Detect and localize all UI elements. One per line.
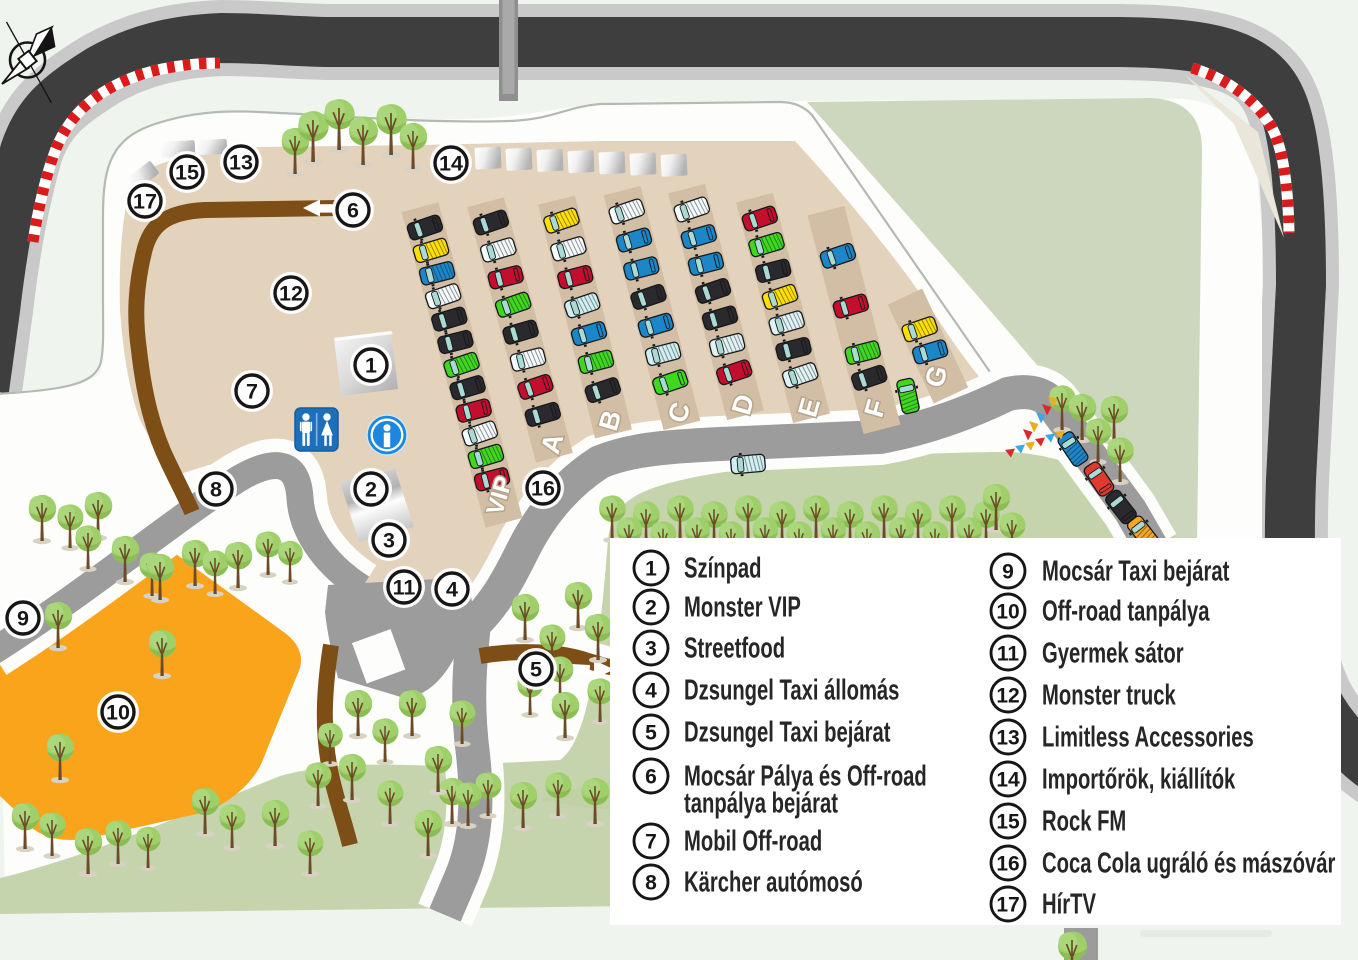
svg-text:17: 17 (133, 190, 157, 214)
svg-text:8: 8 (210, 478, 222, 502)
svg-text:Rock FM: Rock FM (1042, 806, 1126, 837)
svg-text:11: 11 (997, 643, 1020, 666)
svg-text:Limitless Accessories: Limitless Accessories (1042, 722, 1254, 753)
svg-text:2: 2 (365, 478, 377, 502)
svg-text:13: 13 (229, 151, 253, 175)
svg-text:10: 10 (106, 701, 130, 725)
svg-text:13: 13 (996, 727, 1019, 750)
svg-text:Off-road tanpálya: Off-road tanpálya (1042, 596, 1210, 627)
svg-text:12: 12 (279, 282, 303, 306)
svg-text:14: 14 (996, 769, 1020, 792)
svg-text:11: 11 (393, 576, 416, 600)
svg-text:1: 1 (365, 354, 377, 378)
svg-text:16: 16 (531, 477, 555, 501)
svg-text:16: 16 (996, 853, 1019, 876)
svg-text:Dzsungel Taxi állomás: Dzsungel Taxi állomás (684, 675, 899, 706)
svg-text:Streetfood: Streetfood (684, 633, 785, 664)
svg-text:3: 3 (383, 529, 395, 553)
svg-text:14: 14 (439, 152, 463, 176)
svg-text:4: 4 (446, 578, 458, 602)
svg-text:Coca Cola ugráló és mászóvár: Coca Cola ugráló és mászóvár (1042, 848, 1336, 879)
svg-text:9: 9 (17, 607, 29, 631)
svg-text:2: 2 (645, 597, 657, 620)
svg-text:7: 7 (246, 380, 258, 404)
svg-text:Monster truck: Monster truck (1042, 680, 1176, 711)
svg-text:4: 4 (645, 680, 657, 703)
svg-text:Mobil Off-road: Mobil Off-road (684, 826, 822, 857)
svg-text:8: 8 (645, 872, 657, 895)
svg-text:Dzsungel Taxi bejárat: Dzsungel Taxi bejárat (684, 717, 890, 748)
svg-text:15: 15 (996, 811, 1020, 834)
svg-text:Monster VIP: Monster VIP (684, 592, 801, 623)
svg-text:3: 3 (645, 638, 657, 661)
svg-text:7: 7 (645, 831, 657, 854)
svg-text:17: 17 (996, 894, 1019, 917)
svg-text:Színpad: Színpad (684, 553, 762, 584)
svg-text:Gyermek sátor: Gyermek sátor (1042, 638, 1184, 669)
svg-text:15: 15 (175, 161, 199, 185)
svg-text:6: 6 (645, 766, 657, 789)
svg-text:Mocsár Taxi bejárat: Mocsár Taxi bejárat (1042, 556, 1229, 587)
svg-text:Importőrök, kiállítók: Importőrök, kiállítók (1042, 764, 1236, 795)
svg-text:10: 10 (996, 601, 1019, 624)
svg-text:HírTV: HírTV (1042, 889, 1096, 920)
svg-text:6: 6 (347, 199, 359, 223)
svg-text:Kärcher autómosó: Kärcher autómosó (684, 867, 863, 898)
svg-text:9: 9 (1002, 561, 1014, 584)
svg-text:1: 1 (645, 558, 657, 581)
svg-text:tanpálya bejárat: tanpálya bejárat (684, 788, 838, 819)
svg-text:12: 12 (996, 685, 1019, 708)
svg-text:5: 5 (645, 722, 657, 745)
svg-text:5: 5 (530, 658, 542, 682)
